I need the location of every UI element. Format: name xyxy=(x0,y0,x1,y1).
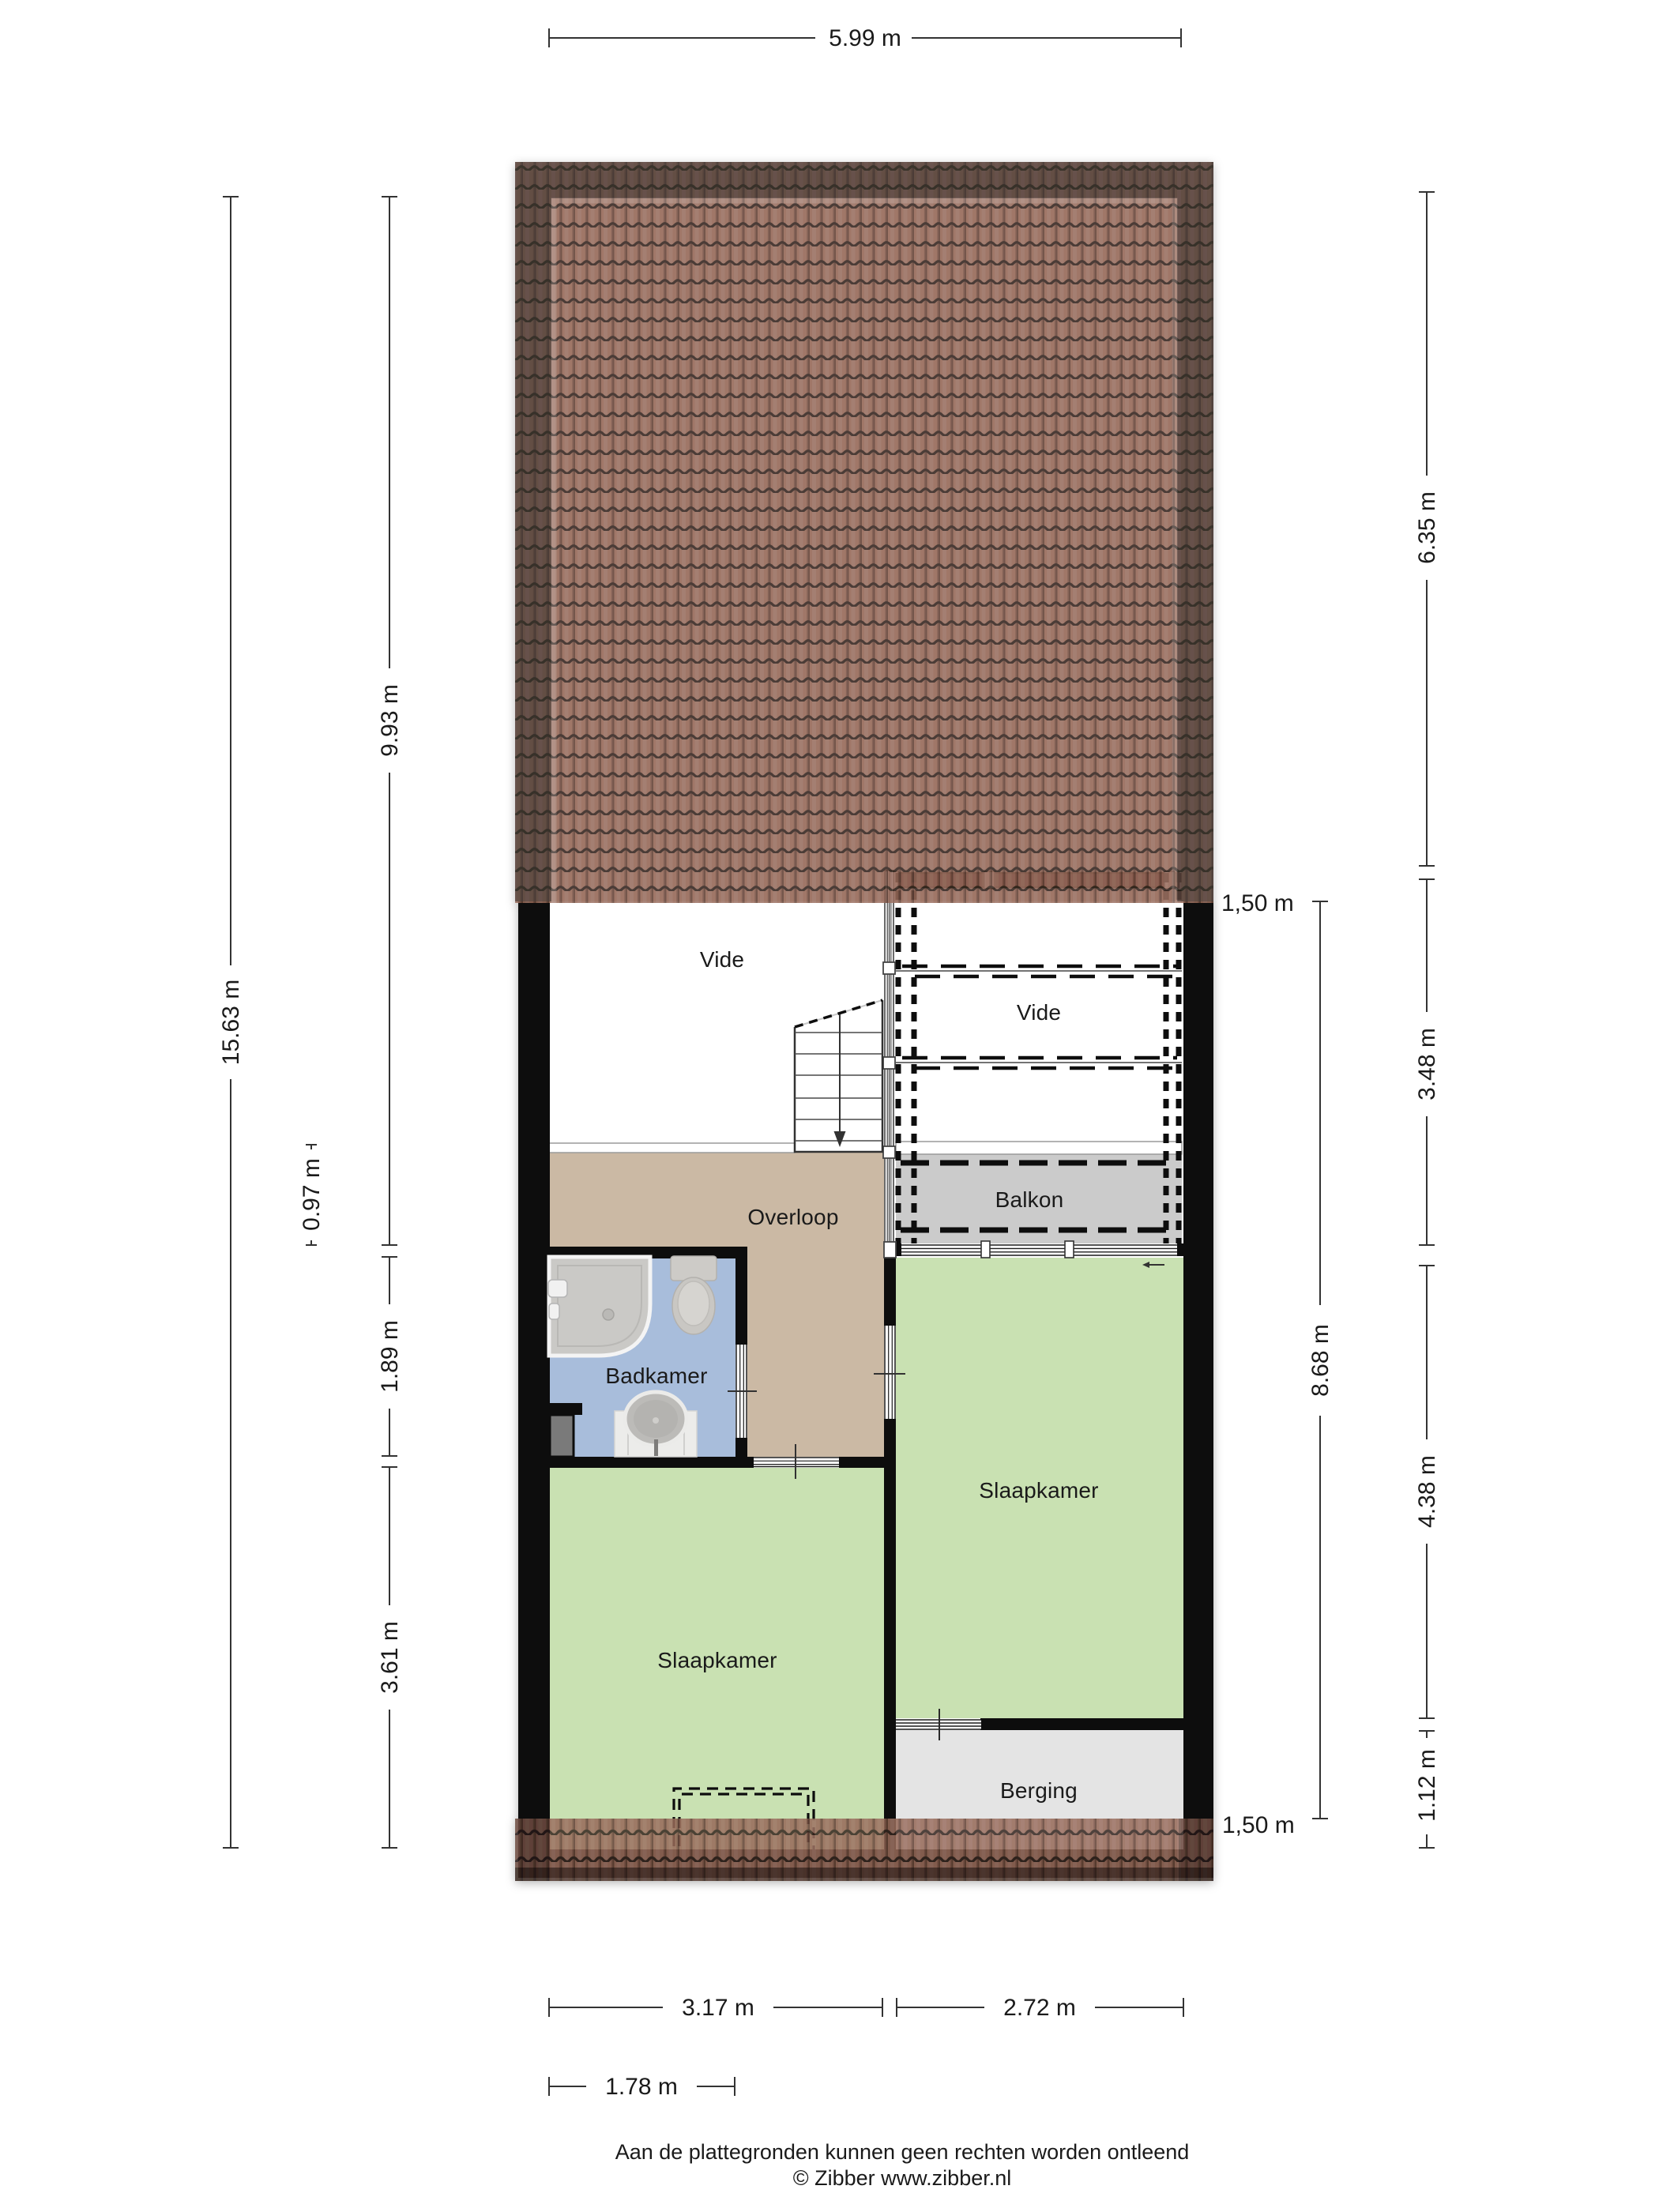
svg-text:1.12 m: 1.12 m xyxy=(1414,1749,1440,1822)
svg-text:Balkon: Balkon xyxy=(995,1187,1064,1212)
svg-text:5.99 m: 5.99 m xyxy=(829,25,901,51)
svg-text:Vide: Vide xyxy=(1017,1000,1061,1025)
svg-text:Aan de plattegronden kunnen ge: Aan de plattegronden kunnen geen rechten… xyxy=(615,2140,1190,2164)
svg-text:0.97 m: 0.97 m xyxy=(299,1158,325,1231)
svg-text:1,50 m: 1,50 m xyxy=(1222,1812,1295,1838)
svg-text:1.78 m: 1.78 m xyxy=(605,2074,678,2100)
svg-text:Slaapkamer: Slaapkamer xyxy=(979,1478,1098,1503)
svg-text:Vide: Vide xyxy=(700,947,744,972)
svg-text:1.89 m: 1.89 m xyxy=(377,1320,403,1393)
svg-text:3.61 m: 3.61 m xyxy=(377,1621,403,1694)
svg-text:1,50 m: 1,50 m xyxy=(1221,890,1294,916)
svg-text:© Zibber www.zibber.nl: © Zibber www.zibber.nl xyxy=(793,2166,1012,2190)
svg-text:15.63 m: 15.63 m xyxy=(218,980,244,1065)
svg-text:Overloop: Overloop xyxy=(747,1205,838,1229)
svg-text:3.48 m: 3.48 m xyxy=(1414,1028,1440,1100)
svg-text:2.72 m: 2.72 m xyxy=(1003,1995,1076,2021)
svg-text:8.68 m: 8.68 m xyxy=(1307,1324,1334,1397)
svg-text:6.35 m: 6.35 m xyxy=(1414,491,1440,564)
svg-text:3.17 m: 3.17 m xyxy=(682,1995,754,2021)
svg-text:Badkamer: Badkamer xyxy=(605,1364,707,1388)
svg-text:4.38 m: 4.38 m xyxy=(1414,1455,1440,1528)
svg-text:9.93 m: 9.93 m xyxy=(377,684,403,757)
svg-text:Berging: Berging xyxy=(1000,1778,1078,1803)
svg-text:Slaapkamer: Slaapkamer xyxy=(657,1648,777,1672)
